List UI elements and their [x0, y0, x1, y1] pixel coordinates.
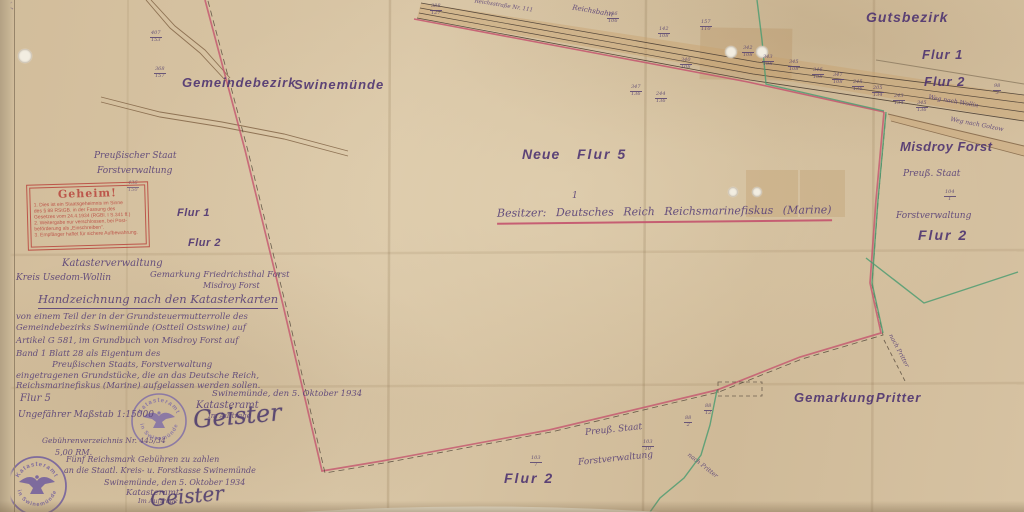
map-linework: Katasteramt in Swinemünde Katasteramt in…: [0, 0, 1024, 512]
parcel-number-denominator: 108: [789, 67, 799, 73]
parcel-number-numerator: 345: [788, 60, 800, 67]
handwritten-label: nach Pritter: [686, 452, 719, 479]
region-label-text: Gemeindebezirk: [182, 75, 296, 90]
parcel-number-numerator: 104: [944, 190, 956, 197]
document-line-text: an die Staatl. Kreis- u. Forstkasse Swin…: [64, 466, 256, 475]
document-line-text: Swinemünde, den 5. Oktober 1934: [212, 389, 362, 399]
handwritten-label-text: Forstverwaltung: [896, 211, 971, 221]
eagle-icon: [143, 411, 175, 428]
parcel-number-denominator: 12: [705, 411, 711, 417]
document-line: Swinemünde, den 5. Oktober 1934: [104, 479, 245, 487]
sheet-bottom-edge: [0, 501, 1024, 512]
parcel-number-denominator: 108: [763, 62, 773, 68]
parcel-number: 103 7: [530, 456, 542, 469]
parcel-number-numerator: 88: [704, 404, 712, 411]
parcel-number-numerator: 103: [642, 440, 654, 447]
document-line-text: Reichsmarinefiskus (Marine) aufgelassen …: [16, 381, 260, 391]
parcel-number-numerator: 347: [630, 85, 642, 92]
handwritten-label: Weg nach Wollin: [928, 95, 979, 110]
owner-annotation: Besitzer: Deutsches Reich Reichsmarinefi…: [497, 203, 832, 225]
handwritten-label: Weg nach Golzow: [950, 117, 1004, 133]
green-boundary-lines: [650, 0, 1018, 512]
document-line: Gemeindebezirks Swinemünde (Ostteil Osts…: [16, 324, 246, 333]
parcel-boundary: [205, 0, 886, 473]
region-label-text: Neue: [522, 146, 560, 162]
handwritten-label-text: Preuß. Staat: [585, 422, 643, 438]
document-line-text: Preußischen Staats, Forstverwaltung: [52, 360, 212, 370]
parcel-number: 88 12: [704, 404, 712, 417]
region-label-text: Flur 1: [177, 207, 210, 219]
document-line: Swinemünde, den 5. Oktober 1934: [212, 390, 362, 399]
document-line-text: Fünf Reichsmark Gebühren zu zahlen: [66, 455, 219, 464]
handwritten-label-text: Reichsbahn: [572, 3, 614, 18]
region-label: Flur 2: [918, 228, 968, 242]
handwritten-label-text: Weg nach Wollin: [928, 94, 979, 110]
svg-text:in Swinemünde: in Swinemünde: [138, 423, 180, 442]
handwritten-label: 1: [572, 192, 578, 201]
tape-patches: [700, 27, 845, 217]
region-label: Flur 2: [188, 238, 221, 249]
region-label: Pritter: [876, 391, 921, 404]
parcel-number: 186 106: [607, 12, 619, 25]
parcel-number-denominator: 136: [631, 92, 641, 98]
stamp-text-top: Katasteramt: [15, 462, 59, 479]
document-line: von einem Teil der in der Grundsteuermut…: [16, 313, 248, 322]
document-line-text: eingetragenen Grundstücke, die an das De…: [16, 371, 259, 381]
document-line: Misdroy Forst: [203, 282, 260, 290]
parcel-number-numerator: 388: [430, 4, 442, 11]
handwritten-label-text: Reichsstraße Nr. 111: [474, 0, 533, 14]
parcel-number-numerator: 205: [872, 86, 884, 93]
dashed-paths: [718, 340, 905, 396]
handwritten-label: Forstverwaltung: [97, 167, 172, 176]
fold-creases: [0, 0, 1024, 512]
parcel-number-denominator: 108: [833, 80, 843, 86]
parcel-number: 388 127: [430, 4, 442, 17]
region-label-text: Flur 5: [577, 146, 627, 162]
document-line: Ungefährer Maßstab 1:15000: [18, 411, 154, 420]
signature: Geister: [192, 400, 282, 432]
stamp-text-bottom: in Swinemünde: [138, 423, 180, 442]
document-line-text: Misdroy Forst: [203, 281, 260, 290]
parcel-number: 340 108: [680, 58, 692, 71]
parcel-boundary-dashed: [208, 1, 886, 473]
parcel-number: 346 108: [812, 68, 824, 81]
road-west: [101, 97, 348, 151]
region-label: Flur 5: [577, 147, 627, 161]
region-label-text: Flur 2: [504, 470, 554, 486]
green-line-east: [872, 112, 886, 333]
handwritten-label: Preußischer Staat: [94, 152, 176, 161]
parcel-number-denominator: 108: [681, 65, 691, 71]
region-label-text: Flur 2: [188, 237, 221, 249]
region-labels: GemeindebezirkSwinemündeGutsbezirkFlur 1…: [0, 0, 1024, 512]
document-line-text: Im Auftrage: [208, 412, 251, 420]
parcel-number-numerator: 142: [658, 27, 670, 34]
parcel-number: 243 134: [893, 94, 905, 107]
document-line: Reichsmarinefiskus (Marine) aufgelassen …: [16, 382, 260, 391]
punch-hole: [752, 187, 762, 197]
parcel-number-denominator: 1: [948, 197, 951, 203]
eagle-icon: [19, 475, 55, 494]
handwritten-label-text: 1: [572, 191, 578, 201]
parcel-number: 407 153: [150, 31, 162, 44]
document-line-text: Gebührenverzeichnis Nr. 445/34: [42, 436, 166, 445]
parcel-number-denominator: 2: [687, 423, 690, 429]
document-line: Katasterverwaltung: [62, 259, 163, 269]
document-line: an die Staatl. Kreis- u. Forstkasse Swin…: [64, 467, 256, 475]
parcel-number-numerator: 157: [700, 20, 712, 27]
region-label: Swinemünde: [294, 78, 384, 91]
svg-text:Katasteramt: Katasteramt: [15, 462, 59, 479]
handwritten-label-text: Forstverwaltung: [578, 450, 654, 468]
corridor-red-boundary: [414, 19, 884, 112]
document-line-text: Kreis Usedom-Wollin: [16, 273, 111, 283]
green-line-south: [650, 390, 717, 512]
region-label-text: Misdroy Forst: [900, 139, 992, 154]
region-label-text: Pritter: [876, 390, 921, 405]
parcel-number-numerator: 244: [655, 92, 667, 99]
document-line-text: Katasterverwaltung: [62, 258, 163, 269]
svg-text:Katasteramt: Katasteramt: [138, 398, 181, 415]
handwritten-label: Forstverwaltung: [896, 212, 971, 221]
parcel-number-denominator: 157: [155, 74, 165, 80]
parcel-number-numerator: 186: [607, 12, 619, 19]
parcel-number-numerator: 340: [680, 58, 692, 65]
parcel-number-denominator: 108: [659, 34, 669, 40]
document-line: Katasteramt: [126, 489, 179, 498]
signature-text: Geister: [192, 398, 283, 434]
parcel-number-denominator: 3: [996, 91, 999, 97]
document-line-text: Flur 5: [20, 393, 51, 404]
parcel-number-numerator: 407: [150, 31, 162, 38]
document-line-text: Ungefährer Maßstab 1:15000: [18, 410, 154, 420]
parcel-number: 345 136: [916, 101, 928, 114]
document-line: Gemarkung Friedrichsthal Forst: [150, 271, 290, 280]
region-label: Gemarkung: [794, 391, 875, 404]
document-line-text: von einem Teil der in der Grundsteuermut…: [16, 312, 248, 322]
road-southeast: [888, 114, 1024, 146]
parcel-number-denominator: 136: [656, 99, 666, 105]
geheim-stamp-inner-border: Geheim! 1. Dies ist ein Staatsgeheimnis …: [29, 184, 147, 247]
parcel-number-denominator: 136: [917, 108, 927, 114]
green-line-crossing: [757, 0, 884, 111]
owner-annotation-text: Besitzer: Deutsches Reich Reichsmarinefi…: [497, 203, 832, 220]
parcel-number-denominator: 106: [608, 19, 618, 25]
region-label-text: Flur 2: [924, 74, 965, 89]
road-northwest: [146, 0, 226, 81]
parcel-number-numerator: 347: [832, 73, 844, 80]
scanned-cadastral-map: Katasteramt in Swinemünde Katasteramt in…: [0, 0, 1024, 512]
parcel-number: 342 108: [742, 46, 754, 59]
parcel-number: 245 136: [852, 80, 864, 93]
parcel-numbers: 388 127 186 106 142 108 157 110 340 108 …: [0, 0, 1024, 512]
document-line: 5,00 RM.: [55, 449, 92, 457]
region-label: Gemeindebezirk: [182, 76, 296, 89]
region-label: Misdroy Forst: [900, 140, 992, 153]
parcel-number-numerator: 98: [993, 84, 1001, 91]
document-line: Band 1 Blatt 28 als Eigentum des: [16, 350, 160, 359]
region-label: Flur 1: [177, 208, 210, 219]
document-line-text: Artikel G 581, im Grundbuch von Misdroy …: [16, 336, 238, 346]
parcel-number-denominator: 7: [534, 463, 537, 469]
document-line-text: Swinemünde, den 5. Oktober 1934: [104, 478, 245, 487]
parcel-number-denominator: 10: [645, 447, 651, 453]
document-line-text: Band 1 Blatt 28 als Eigentum des: [16, 349, 160, 359]
handwritten-label-text: Weg nach Golzow: [950, 116, 1004, 133]
parcel-number-denominator: 108: [743, 53, 753, 59]
region-label-text: Gemarkung: [794, 390, 875, 405]
flur-divider-line: [876, 60, 1024, 84]
region-label-text: Flur 1: [922, 47, 963, 62]
parcel-number: 104 1: [944, 190, 956, 203]
parcel-number: 142 108: [658, 27, 670, 40]
document-line-text: Handzeichnung nach den Katasterkarten: [38, 292, 278, 306]
parcel-number-denominator: 134: [873, 93, 883, 99]
document-line-text: Katasteramt: [126, 488, 179, 498]
document-line: Im Auftrage: [208, 413, 251, 420]
parcel-number-numerator: 245: [852, 80, 864, 87]
parcel-number-denominator: 153: [151, 38, 161, 44]
parcel-number-numerator: 243: [893, 94, 905, 101]
punch-hole: [18, 49, 32, 63]
parcel-number: 347 108: [832, 73, 844, 86]
region-label: Gutsbezirk: [866, 10, 948, 24]
region-label: Flur 2: [924, 75, 965, 88]
parcel-number-numerator: 368: [154, 67, 166, 74]
handwritten-label: Reichsbahn: [572, 4, 614, 18]
parcel-number-denominator: 110: [701, 27, 711, 33]
punch-hole: [728, 187, 738, 197]
handwritten-labels: Preußischer StaatForstverwaltungPreuß. S…: [0, 0, 1024, 512]
document-line: Flur 5: [20, 394, 51, 404]
parcel-boundary-red: [205, 0, 884, 471]
document-line: Katasteramt: [196, 401, 259, 411]
region-label: Flur 1: [922, 48, 963, 61]
punch-hole: [725, 46, 737, 58]
parcel-number: 205 134: [872, 86, 884, 99]
sheet-left-edge: [0, 0, 15, 512]
parcel-number-denominator: 108: [813, 75, 823, 81]
parcel-number: 88 2: [684, 416, 692, 429]
parcel-number-denominator: 134: [894, 101, 904, 107]
parcel-number: 103 10: [642, 440, 654, 453]
document-line: Kreis Usedom-Wollin: [16, 274, 111, 283]
signatures: GeisterGeister: [0, 0, 1024, 512]
parcel-number: 98 3: [993, 84, 1001, 97]
parcel-number: 157 110: [700, 20, 712, 33]
punch-hole: [756, 46, 768, 58]
stamp-text-top: Katasteramt: [138, 398, 181, 415]
region-label-text: Gutsbezirk: [866, 9, 948, 25]
document-line-text: Gemarkung Friedrichsthal Forst: [150, 270, 290, 280]
handwritten-label-text: nach Pritter: [887, 333, 910, 369]
handwritten-label: nach Pritter: [887, 333, 909, 368]
document-line-text: Katasteramt: [196, 400, 259, 411]
region-label: Neue: [522, 147, 560, 161]
green-line-v: [866, 258, 1018, 303]
geheim-stamp-title: Geheim!: [33, 187, 141, 201]
handwritten-label-text: Preuß. Staat: [903, 169, 960, 179]
parcel-number-numerator: 103: [530, 456, 542, 463]
handwritten-label: Reichsstraße Nr. 111: [474, 0, 533, 14]
parcel-number-numerator: 345: [916, 101, 928, 108]
document-line: Handzeichnung nach den Katasterkarten: [38, 294, 278, 309]
roads: [101, 0, 1024, 156]
parcel-number-numerator: 342: [742, 46, 754, 53]
document-line: eingetragenen Grundstücke, die an das De…: [16, 372, 259, 381]
parcel-number: 347 136: [630, 85, 642, 98]
geheim-stamp: Geheim! 1. Dies ist ein Staatsgeheimnis …: [26, 181, 150, 250]
handwritten-label: Preuß. Staat: [903, 170, 960, 179]
round-stamp-1: Katasteramt in Swinemünde: [132, 394, 186, 448]
document-line-text: 5,00 RM.: [55, 448, 92, 457]
parcel-number-numerator: 346: [812, 68, 824, 75]
document-line: Artikel G 581, im Grundbuch von Misdroy …: [16, 337, 238, 346]
handwritten-label: Preuß. Staat: [585, 423, 643, 438]
document-line: Fünf Reichsmark Gebühren zu zahlen: [66, 456, 219, 464]
handwritten-label: Forstverwaltung: [578, 451, 654, 468]
document-line-text: Gemeindebezirks Swinemünde (Ostteil Osts…: [16, 323, 246, 333]
path-to-pritter: [884, 340, 905, 381]
parcel-number: 368 157: [154, 67, 166, 80]
parcel-number: 244 136: [655, 92, 667, 105]
region-label-text: Flur 2: [918, 227, 968, 243]
handwritten-label-text: Forstverwaltung: [97, 166, 172, 176]
parcel-number: 345 108: [788, 60, 800, 73]
document-line: Gebührenverzeichnis Nr. 445/34: [42, 437, 166, 445]
region-label-text: Swinemünde: [294, 77, 384, 92]
railway-corridor: [414, 3, 1024, 121]
document-text-block: KatasterverwaltungKreis Usedom-WollinGem…: [0, 0, 1024, 512]
parcel-number-numerator: 88: [684, 416, 692, 423]
dashed-parcel-box: [718, 382, 762, 396]
region-label: Flur 2: [504, 471, 554, 485]
handwritten-label-text: Preußischer Staat: [94, 151, 176, 161]
geheim-stamp-lines: 1. Dies ist ein Staatsgeheimnis im Sinne…: [34, 199, 143, 239]
document-line: Preußischen Staats, Forstverwaltung: [52, 361, 212, 370]
handwritten-label-text: nach Pritter: [686, 452, 719, 480]
parcel-number-denominator: 127: [431, 11, 441, 17]
parcel-number-denominator: 136: [853, 87, 863, 93]
